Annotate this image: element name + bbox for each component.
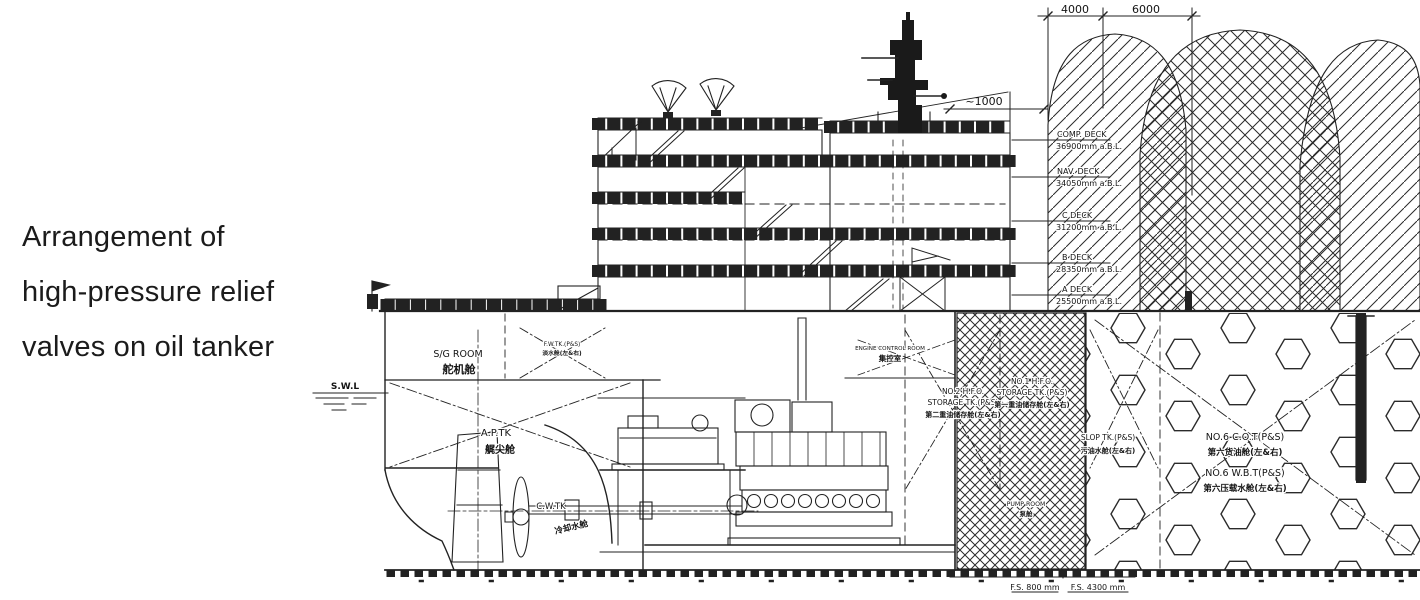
svg-text:STORAGE TK.(P&S): STORAGE TK.(P&S) (997, 388, 1068, 397)
label-cw-tank: C.W.TK (536, 502, 566, 512)
svg-text:第六压载水舱(左&右): 第六压载水舱(左&右) (1203, 483, 1286, 494)
svg-text:28350mm a.B.L.: 28350mm a.B.L. (1056, 265, 1122, 274)
svg-text:NO.6 W.B.T(P&S): NO.6 W.B.T(P&S) (1205, 468, 1285, 479)
svg-text:NAV. DECK: NAV. DECK (1057, 167, 1100, 176)
label-swl: S.W.L (331, 382, 360, 392)
svg-text:第六货油舱(左&右): 第六货油舱(左&右) (1208, 447, 1283, 458)
label-ecr-cn: 集控室 (878, 353, 902, 363)
label-fw-tank-cn: 淡水舱(左&右) (542, 349, 582, 357)
svg-text:36900mm a.B.L.: 36900mm a.B.L. (1056, 142, 1122, 151)
label-pump-room: PUMP ROOM (1007, 501, 1046, 508)
dim-approx-1000: ~1000 (965, 95, 1002, 108)
svg-text:B DECK: B DECK (1062, 253, 1093, 262)
svg-text:NO.2 H.F.O.: NO.2 H.F.O. (942, 387, 984, 396)
label-sg-room-cn: 舵机舱 (443, 362, 477, 376)
svg-text:COMP. DECK: COMP. DECK (1057, 130, 1107, 139)
svg-text:第二重油储存舱(左&右): 第二重油储存舱(左&右) (925, 410, 1001, 419)
label-cw-tank-cn: 冷却水舱 (554, 518, 590, 537)
radar-antenna-icons (652, 79, 734, 118)
label-fs-left: F.S. 800 mm (1010, 583, 1060, 592)
svg-text:C DECK: C DECK (1062, 211, 1093, 220)
deck-vent-post (1185, 291, 1192, 311)
dim-4000: 4000 (1061, 3, 1089, 16)
dim-6000: 6000 (1132, 3, 1160, 16)
svg-text:污油水舱(左&右): 污油水舱(左&右) (1081, 446, 1136, 455)
davit-crane (600, 120, 642, 162)
label-sg-room: S/G ROOM (433, 349, 482, 360)
propeller-shaft (448, 500, 758, 520)
svg-text:NO.6 C.O.T(P&S): NO.6 C.O.T(P&S) (1206, 432, 1284, 443)
superstructure-railings (598, 118, 1010, 271)
label-fs-right: F.S. 4300 mm (1071, 583, 1126, 592)
tanker-elevation-drawing: 4000 6000 ~1000 COMP. DECK 36900mm a.B.L… (0, 0, 1420, 600)
svg-text:STORAGE TK.(P&S): STORAGE TK.(P&S) (928, 398, 999, 407)
no1-hfo-block (957, 313, 1085, 569)
label-ecr: ENGINE CONTROL ROOM (855, 346, 925, 352)
svg-text:25500mm a.B.L.: 25500mm a.B.L. (1056, 297, 1122, 306)
steering-gear-room (385, 314, 660, 380)
waterline (313, 393, 388, 410)
label-fw-tank: F.W.TK.(P&S) (544, 342, 581, 348)
propeller (505, 477, 529, 557)
svg-text:34050mm a.B.L.: 34050mm a.B.L. (1056, 179, 1122, 188)
svg-text:31200mm a.B.L.: 31200mm a.B.L. (1056, 223, 1122, 232)
label-ap-tank-cn: 艉尖舱 (485, 443, 516, 456)
label-pump-room-cn: 泵舱 (1019, 509, 1034, 518)
baseline (385, 570, 1420, 592)
generator-engine (612, 415, 724, 470)
label-ap-tank: A.P.TK (481, 428, 512, 439)
tank-dome-crosshatched-middle (1140, 30, 1340, 311)
svg-text:SLOP TK.(P&S): SLOP TK.(P&S) (1081, 433, 1135, 442)
svg-text:NO.1 H.F.O.: NO.1 H.F.O. (1011, 377, 1053, 386)
svg-text:A DECK: A DECK (1062, 285, 1093, 294)
svg-text:第一重油储存舱(左&右): 第一重油储存舱(左&右) (994, 400, 1070, 409)
aft-davit-structure (900, 248, 950, 311)
